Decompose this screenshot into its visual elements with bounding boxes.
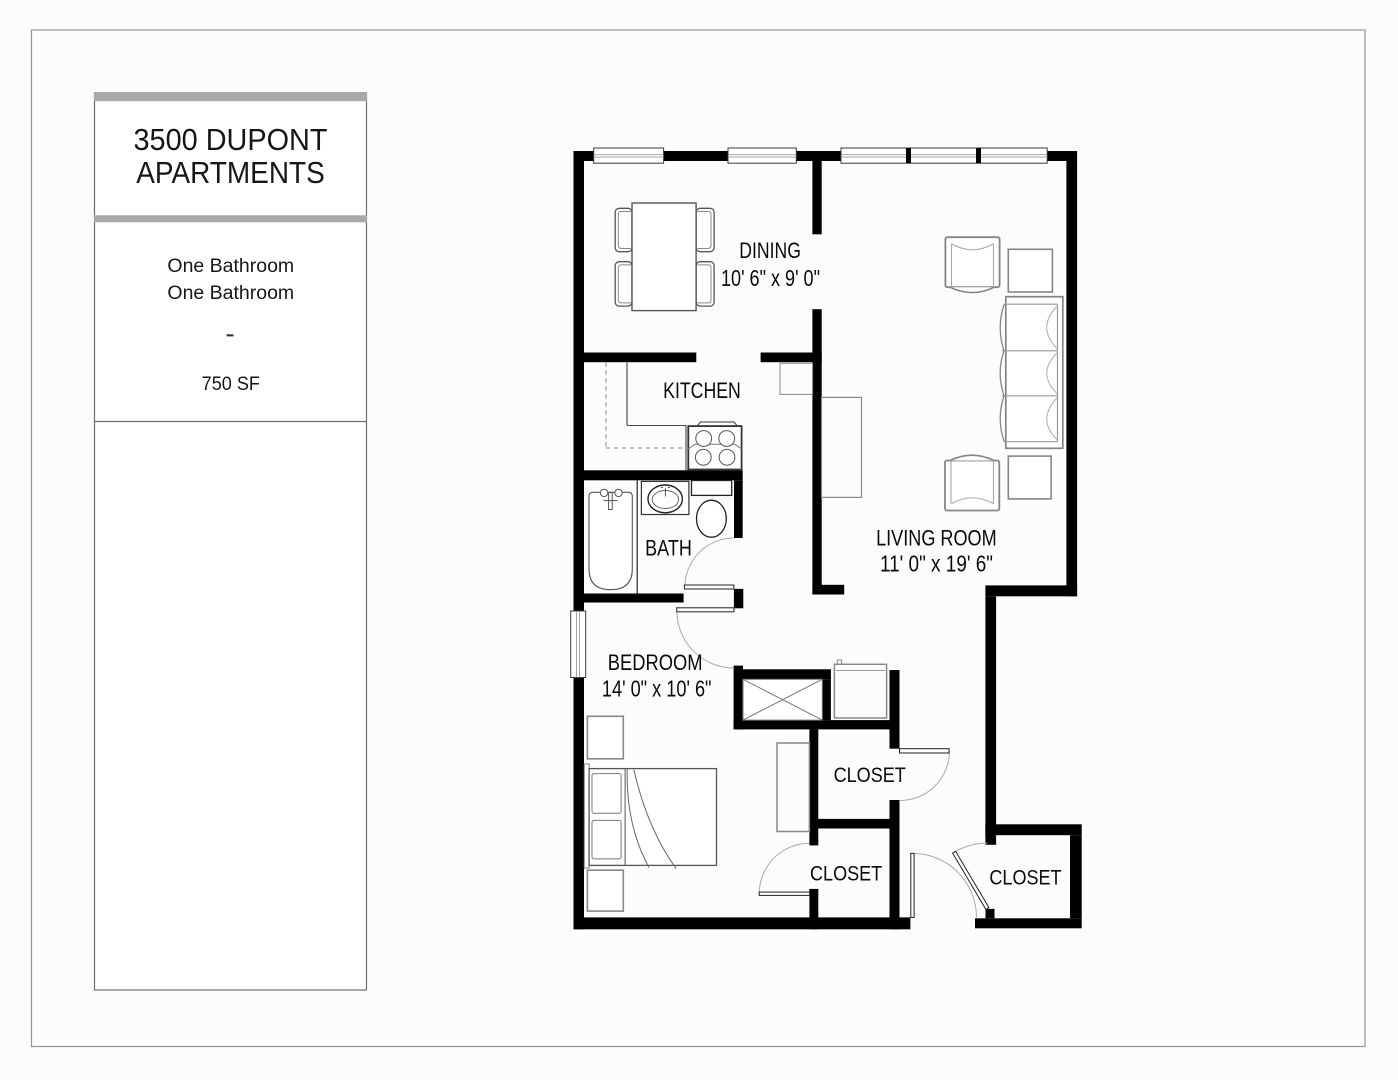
svg-text:KITCHEN: KITCHEN	[663, 378, 741, 403]
svg-text:11' 0" x 19' 6": 11' 0" x 19' 6"	[880, 551, 993, 577]
svg-text:One Bathroom: One Bathroom	[167, 256, 294, 277]
svg-text:BEDROOM: BEDROOM	[608, 650, 703, 675]
svg-text:DINING: DINING	[739, 238, 801, 263]
svg-text:CLOSET: CLOSET	[989, 867, 1061, 890]
svg-text:LIVING ROOM: LIVING ROOM	[876, 526, 997, 551]
svg-text:3500 DUPONT: 3500 DUPONT	[134, 123, 328, 157]
svg-text:10' 6" x 9' 0": 10' 6" x 9' 0"	[721, 265, 820, 291]
svg-text:CLOSET: CLOSET	[834, 764, 906, 787]
svg-text:One Bathroom: One Bathroom	[167, 283, 294, 304]
svg-text:BATH: BATH	[645, 535, 692, 560]
svg-text:14' 0" x 10' 6": 14' 0" x 10' 6"	[602, 676, 712, 702]
svg-text:CLOSET: CLOSET	[810, 863, 882, 886]
svg-text:750 SF: 750 SF	[202, 374, 260, 395]
svg-text:APARTMENTS: APARTMENTS	[136, 156, 325, 190]
